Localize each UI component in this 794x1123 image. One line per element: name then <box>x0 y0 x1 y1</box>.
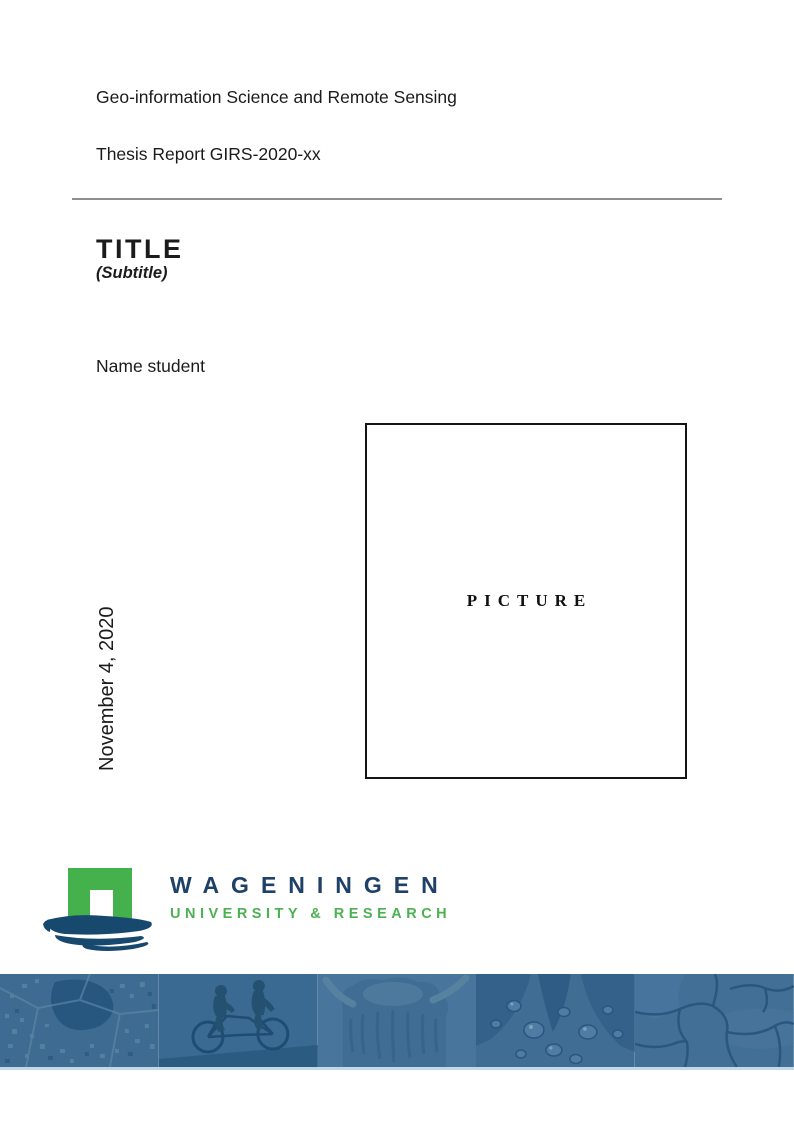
report-id: Thesis Report GIRS-2020-xx <box>96 144 321 165</box>
aerial-map-image <box>0 974 159 1067</box>
wageningen-gate-icon <box>43 862 158 954</box>
date-vertical: November 4, 2020 <box>96 606 119 771</box>
horizontal-rule <box>72 198 722 200</box>
photo-banner <box>0 974 794 1070</box>
brush-stroke-shape <box>43 915 152 951</box>
page-title: TITLE <box>96 234 184 265</box>
highland-cow-image <box>318 974 477 1067</box>
water-droplets-image <box>476 974 635 1067</box>
thesis-cover-page: Geo-information Science and Remote Sensi… <box>0 0 794 1123</box>
author-name: Name student <box>96 356 205 377</box>
page-subtitle: (Subtitle) <box>96 264 168 283</box>
logo-tagline: UNIVERSITY & RESEARCH <box>170 906 451 922</box>
cracked-earth-image <box>635 974 794 1067</box>
logo-wordmark: WAGENINGEN <box>170 872 450 899</box>
picture-placeholder-box: PICTURE <box>365 423 687 779</box>
program-name: Geo-information Science and Remote Sensi… <box>96 87 457 108</box>
picture-placeholder-label: PICTURE <box>460 591 593 611</box>
tandem-bicycle-image <box>159 974 318 1067</box>
